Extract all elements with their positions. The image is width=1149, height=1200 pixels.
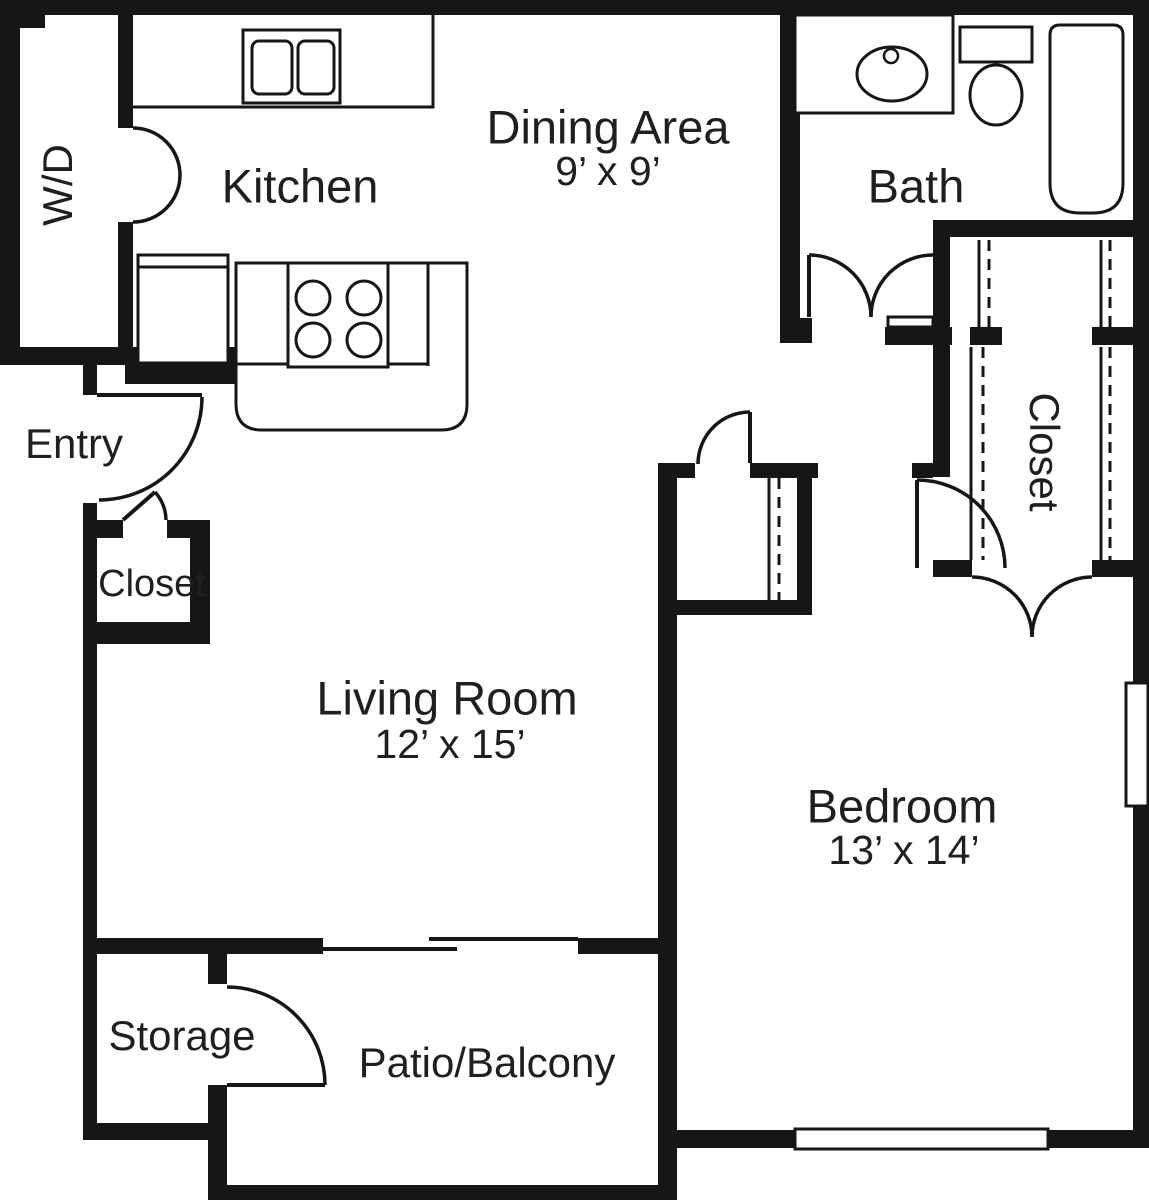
- wall-right-outer: [1133, 0, 1149, 1148]
- wall-tub-divider: [933, 220, 1133, 237]
- wall-closet-bottom-right-stub: [1092, 560, 1133, 577]
- wall-closet-mid-a: [885, 327, 952, 345]
- bath-door-threshold: [888, 317, 933, 327]
- label-living: Living Room: [316, 671, 577, 724]
- floor-plan: W/D Kitchen Dining Area 9’ x 9’ Bath Ent…: [0, 0, 1149, 1200]
- kitchen-sink-icon: [243, 30, 340, 103]
- wall-hall-closet-top-a: [658, 463, 695, 478]
- wall-entry-closet-bottom: [97, 622, 210, 644]
- wall-storage-right-upper: [208, 954, 227, 984]
- wall-entry-door-stub: [83, 365, 97, 395]
- wall-entry-closet-top-left: [97, 520, 123, 538]
- label-entry-closet: Closet: [98, 563, 206, 605]
- wall-patio-bottom: [208, 1185, 673, 1200]
- wall-entry-closet-top-right: [167, 520, 210, 538]
- wall-wd-right-upper: [118, 15, 133, 128]
- wall-storage-right-lower: [208, 1085, 227, 1200]
- bathroom-sink-icon: [795, 15, 953, 113]
- wall-closet-mid-b: [970, 327, 1002, 345]
- label-bedroom-closet: Closet: [1021, 392, 1068, 511]
- wall-hall-closet-right: [797, 478, 812, 615]
- wall-closet-left: [933, 237, 950, 477]
- windows: [795, 683, 1148, 1149]
- wall-closet-mid-c: [1092, 327, 1133, 345]
- wall-left-lower: [83, 503, 97, 1140]
- label-entry: Entry: [25, 420, 123, 467]
- bedroom-window-bottom: [795, 1129, 1048, 1149]
- wall-storage-bottom: [83, 1123, 227, 1140]
- stove-icon: [288, 263, 388, 367]
- bedroom-window-right: [1126, 683, 1148, 806]
- label-patio: Patio/Balcony: [359, 1039, 616, 1086]
- bedroom-closet-doors: [972, 577, 1092, 637]
- label-bedroom: Bedroom: [807, 779, 998, 832]
- label-kitchen: Kitchen: [222, 159, 379, 212]
- hall-closet-door: [698, 412, 750, 464]
- refrigerator-icon: [138, 255, 228, 363]
- label-wd: W/D: [34, 144, 81, 226]
- wall-bath-left-stub: [780, 318, 812, 343]
- floor-plan-drawing: W/D Kitchen Dining Area 9’ x 9’ Bath Ent…: [0, 0, 1149, 1200]
- wall-hall-closet-top-b: [750, 463, 818, 478]
- bathtub-icon: [1050, 25, 1123, 213]
- label-bath: Bath: [868, 159, 965, 212]
- wall-closet-bottom-left-stub: [933, 560, 972, 577]
- wall-kitchen-bottom-b: [125, 365, 237, 384]
- wall-living-bedroom-divider: [658, 463, 677, 1200]
- wall-left-outer: [0, 0, 20, 365]
- label-dining: Dining Area: [487, 100, 731, 153]
- sliding-glass-door: [322, 937, 578, 951]
- bath-door: [809, 255, 933, 317]
- wall-wd-right-lower: [118, 222, 133, 350]
- label-living-dims: 12’ x 15’: [374, 721, 525, 767]
- washer-dryer-doors: [133, 128, 180, 222]
- label-storage: Storage: [108, 1012, 255, 1059]
- toilet-icon: [960, 27, 1032, 125]
- wall-top: [0, 0, 1149, 15]
- bedroom-door: [917, 480, 1005, 568]
- label-dining-dims: 9’ x 9’: [555, 148, 661, 194]
- wall-closet-left-cap: [912, 463, 933, 478]
- label-bedroom-dims: 13’ x 14’: [828, 827, 979, 873]
- wall-hall-closet-bottom: [658, 600, 812, 615]
- wall-living-bottom-left: [88, 938, 323, 954]
